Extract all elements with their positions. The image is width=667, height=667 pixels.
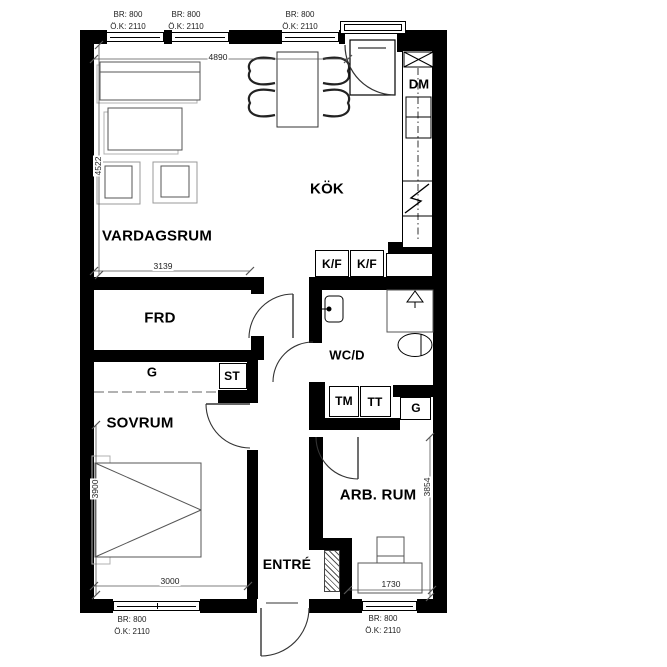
dining-table <box>277 52 318 127</box>
window-label: BR: 800 Ö.K: 2110 <box>114 614 149 638</box>
floor-plan: VARDAGSRUM KÖK FRD SOVRUM WC/D ARB. RUM … <box>0 0 667 667</box>
window-label-br: BR: 800 <box>168 9 203 21</box>
fixture-label-g-wardrobe: G <box>147 365 157 380</box>
dim-sovrum-height: 3900 <box>90 479 100 500</box>
window-label: BR: 800 Ö.K: 2110 <box>365 613 400 637</box>
window-label-ok: Ö.K: 2110 <box>365 625 400 637</box>
window-label-ok: Ö.K: 2110 <box>282 21 317 33</box>
fixture-label-dm: DM <box>409 77 430 92</box>
window-label-br: BR: 800 <box>114 614 149 626</box>
bed <box>92 456 201 564</box>
window-label: BR: 800 Ö.K: 2110 <box>282 9 317 33</box>
room-label-wcd: WC/D <box>329 348 364 363</box>
door-front <box>261 603 309 656</box>
shower <box>387 290 433 332</box>
toilet <box>398 334 432 357</box>
linework-layer <box>0 0 667 667</box>
fixture-label-tt: TT <box>367 395 382 409</box>
floor-drain-icon <box>407 291 423 308</box>
door-entrance-top <box>345 40 395 95</box>
armchair <box>97 162 140 204</box>
window-label-br: BR: 800 <box>365 613 400 625</box>
window-label-ok: Ö.K: 2110 <box>110 21 145 33</box>
dim-sovrum-width: 3000 <box>160 576 181 586</box>
window-label-br: BR: 800 <box>282 9 317 21</box>
fixture-label-tm: TM <box>335 394 353 408</box>
door-frd <box>249 294 293 338</box>
stove-lightning-icon <box>405 184 429 213</box>
fixture-label-kf2: K/F <box>357 257 377 271</box>
door-arbrum <box>316 437 358 479</box>
fixture-label-kf1: K/F <box>322 257 342 271</box>
washbasin <box>322 296 343 322</box>
armchair <box>153 162 197 203</box>
window-label-br: BR: 800 <box>110 9 145 21</box>
dim-desk-width: 1730 <box>381 579 402 589</box>
door-wcd <box>273 342 313 382</box>
fixture-label-st: ST <box>224 369 240 383</box>
dim-living-height: 4522 <box>93 156 103 177</box>
coffee-table <box>104 108 182 154</box>
dim-frd-width: 3139 <box>153 261 174 271</box>
room-label-entre: ENTRÉ <box>263 556 311 572</box>
fixture-label-g-closet: G <box>411 401 421 415</box>
room-label-frd: FRD <box>144 310 175 327</box>
dim-top-width: 4890 <box>208 52 229 62</box>
window-label: BR: 800 Ö.K: 2110 <box>110 9 145 33</box>
window-label-ok: Ö.K: 2110 <box>168 21 203 33</box>
room-label-arbrum: ARB. RUM <box>340 487 417 504</box>
room-label-vardagsrum: VARDAGSRUM <box>102 228 212 245</box>
room-label-sovrum: SOVRUM <box>106 415 173 432</box>
window-label: BR: 800 Ö.K: 2110 <box>168 9 203 33</box>
hob <box>406 97 431 138</box>
sofa <box>97 62 200 103</box>
wall-cabinet-crossed <box>404 52 433 67</box>
window-label-ok: Ö.K: 2110 <box>114 626 149 638</box>
dim-arbrum-height: 3854 <box>422 477 432 498</box>
door-sovrum <box>206 404 250 448</box>
room-label-kok: KÖK <box>310 181 344 198</box>
